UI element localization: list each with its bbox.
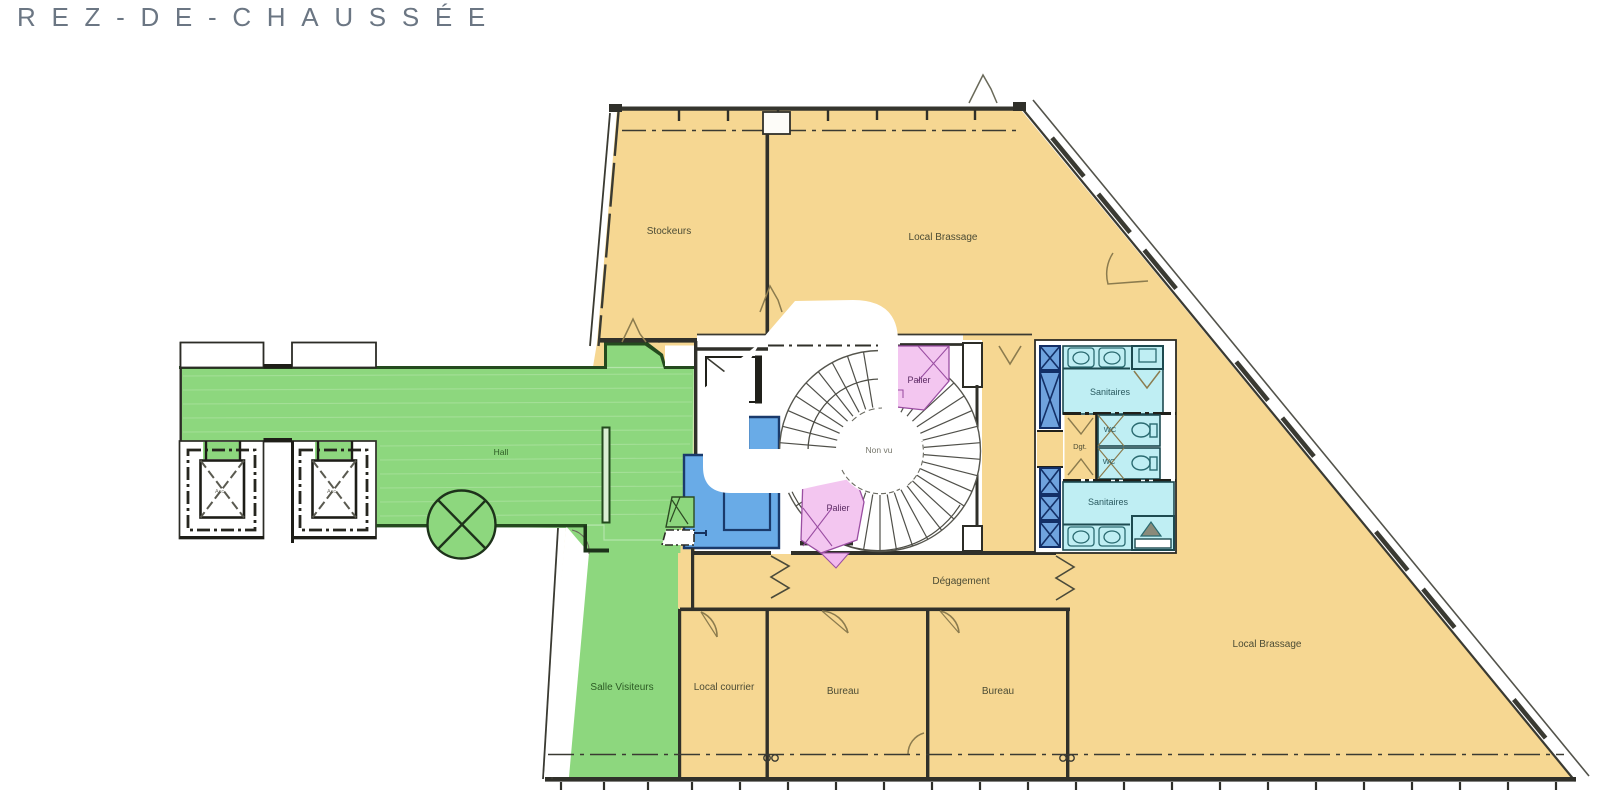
svg-text:WC: WC: [1104, 425, 1117, 434]
svg-text:Sanitaires: Sanitaires: [1090, 387, 1131, 397]
svg-text:WC: WC: [1103, 457, 1116, 466]
svg-text:Bureau: Bureau: [982, 686, 1014, 697]
svg-text:Asc: Asc: [327, 489, 336, 495]
svg-text:Local courrier: Local courrier: [694, 682, 755, 693]
svg-text:Local Brassage: Local Brassage: [909, 232, 978, 243]
svg-text:Palier: Palier: [826, 503, 849, 513]
svg-text:Salle Visiteurs: Salle Visiteurs: [590, 682, 653, 693]
svg-text:Dégagement: Dégagement: [932, 576, 989, 587]
svg-text:Bureau: Bureau: [827, 686, 859, 697]
svg-text:Non vu: Non vu: [866, 445, 893, 455]
svg-text:Sanitaires: Sanitaires: [1088, 497, 1129, 507]
svg-text:Hall: Hall: [494, 447, 509, 457]
svg-text:Dgt.: Dgt.: [1073, 442, 1087, 451]
svg-text:Local Brassage: Local Brassage: [1233, 639, 1302, 650]
svg-text:REZ-DE-CHAUSSÉE: REZ-DE-CHAUSSÉE: [17, 2, 501, 32]
svg-text:Stockeurs: Stockeurs: [647, 226, 691, 237]
svg-text:Asc: Asc: [215, 489, 224, 495]
svg-text:Palier: Palier: [907, 375, 930, 385]
